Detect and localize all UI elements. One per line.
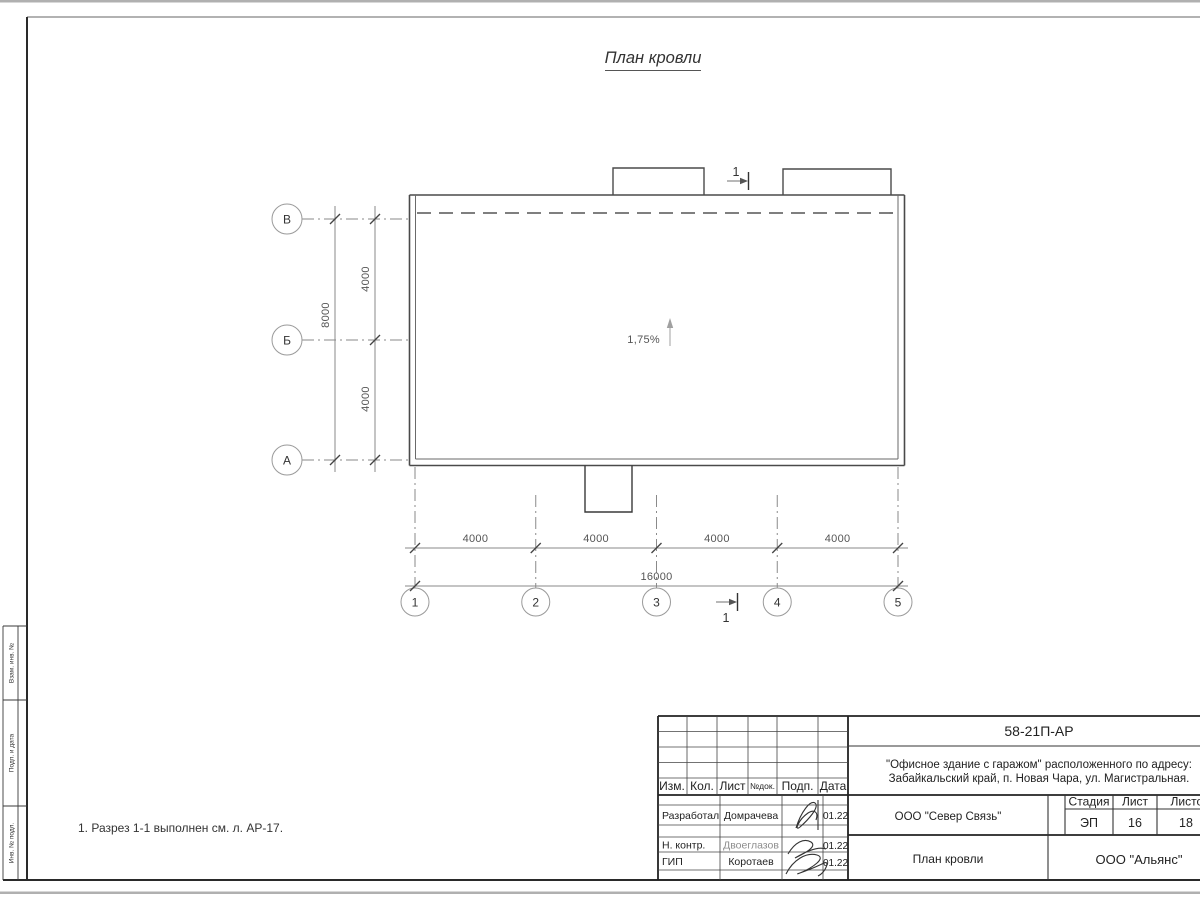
axis-label-1: 1 [412, 596, 419, 610]
tb-sheets-value: 18 [1179, 816, 1193, 830]
roof-parapet-2 [783, 169, 891, 195]
slope-mark: 1,75% [627, 318, 673, 346]
tb-sheet-value: 16 [1128, 816, 1142, 830]
axis-label-v: В [283, 213, 291, 227]
tb-col-list: Лист [719, 779, 746, 793]
tb-name-gip: Коротаев [728, 856, 774, 868]
tb-stage-value: ЭП [1080, 816, 1098, 830]
dim-value: 4000 [704, 533, 730, 545]
slope-label: 1,75% [627, 334, 660, 346]
axis-label-2: 2 [532, 596, 539, 610]
signature-developer [796, 800, 818, 830]
axis-label-b: Б [283, 334, 291, 348]
drawing-note: 1. Разрез 1-1 выполнен см. л. АР-17. [78, 821, 283, 835]
signature-gip [786, 841, 827, 877]
tb-doc-number: 58-21П-АР [1004, 723, 1073, 739]
page-top-edge [0, 0, 1200, 3]
tb-col-kol: Кол. [690, 779, 714, 793]
tb-sheets-label: Листов [1171, 795, 1200, 809]
section-marker-bottom: 1 [716, 593, 738, 625]
tb-date-ncontrol: 01.22 [823, 841, 848, 852]
page-title: План кровли [605, 49, 702, 67]
dim-value: 4000 [583, 533, 609, 545]
dim-value-total: 16000 [640, 571, 672, 583]
page-bottom-edge [0, 892, 1200, 895]
tb-project-line2: Забайкальский край, п. Новая Чара, ул. М… [889, 773, 1190, 785]
drawing-sheet: Взам. инв. № Подп. и дата Инв. № подл. П… [0, 0, 1200, 900]
axis-label-5: 5 [895, 596, 902, 610]
tb-col-podp: Подп. [782, 779, 814, 793]
tb-company: ООО "Альянс" [1096, 852, 1183, 867]
side-stamp-label: Инв. № подл. [9, 823, 16, 864]
tb-project-line1: "Офисное здание с гаражом" расположенног… [886, 759, 1192, 771]
section-arrow-head [729, 599, 737, 605]
tb-sheet-label: Лист [1122, 795, 1149, 809]
section-label: 1 [723, 611, 730, 625]
tb-name-ncontrol: Двоеглазов [723, 840, 779, 852]
dim-value: 4000 [360, 266, 372, 292]
section-arrow-head [740, 178, 748, 184]
dim-value-total: 8000 [320, 302, 332, 328]
tb-col-data: Дата [820, 779, 847, 793]
tb-col-ndok: №док. [750, 781, 775, 791]
section-label: 1 [733, 165, 740, 179]
roof-canopy [585, 466, 632, 513]
axis-label-4: 4 [774, 596, 781, 610]
side-stamp-label: Взам. инв. № [9, 643, 16, 683]
section-marker-top: 1 [727, 165, 749, 190]
tb-role-gip: ГИП [662, 856, 683, 868]
dim-value: 4000 [360, 386, 372, 412]
tb-stage-label: Стадия [1069, 795, 1110, 809]
side-stamp-label: Подп. и дата [9, 733, 16, 772]
dim-value: 4000 [825, 533, 851, 545]
sheet-frame [3, 17, 1200, 880]
tb-date-developer: 01.22 [823, 811, 848, 822]
axis-label-3: 3 [653, 596, 660, 610]
tb-drawing-name: План кровли [913, 852, 984, 866]
tb-role-ncontrol: Н. контр. [662, 840, 705, 852]
drawing-title: План кровли [605, 49, 702, 71]
dimensions-left: 4000 4000 8000 [320, 206, 380, 472]
slope-arrow-head [667, 318, 673, 328]
tb-name-developer: Домрачева [724, 810, 779, 822]
axes-left: В Б А [272, 204, 409, 475]
dim-value: 4000 [463, 533, 489, 545]
axis-label-a: А [283, 454, 291, 468]
tb-col-izm: Изм. [659, 779, 685, 793]
title-block: Изм. Кол. Лист №док. Подп. Дата Разработ… [658, 716, 1200, 880]
side-stamp: Взам. инв. № Подп. и дата Инв. № подл. [3, 626, 27, 880]
tb-org: ООО "Север Связь" [895, 811, 1002, 823]
roof-plan-drawing: Взам. инв. № Подп. и дата Инв. № подл. П… [0, 0, 1200, 900]
roof-parapet-1 [613, 168, 704, 195]
tb-role-developer: Разработал [662, 810, 719, 822]
